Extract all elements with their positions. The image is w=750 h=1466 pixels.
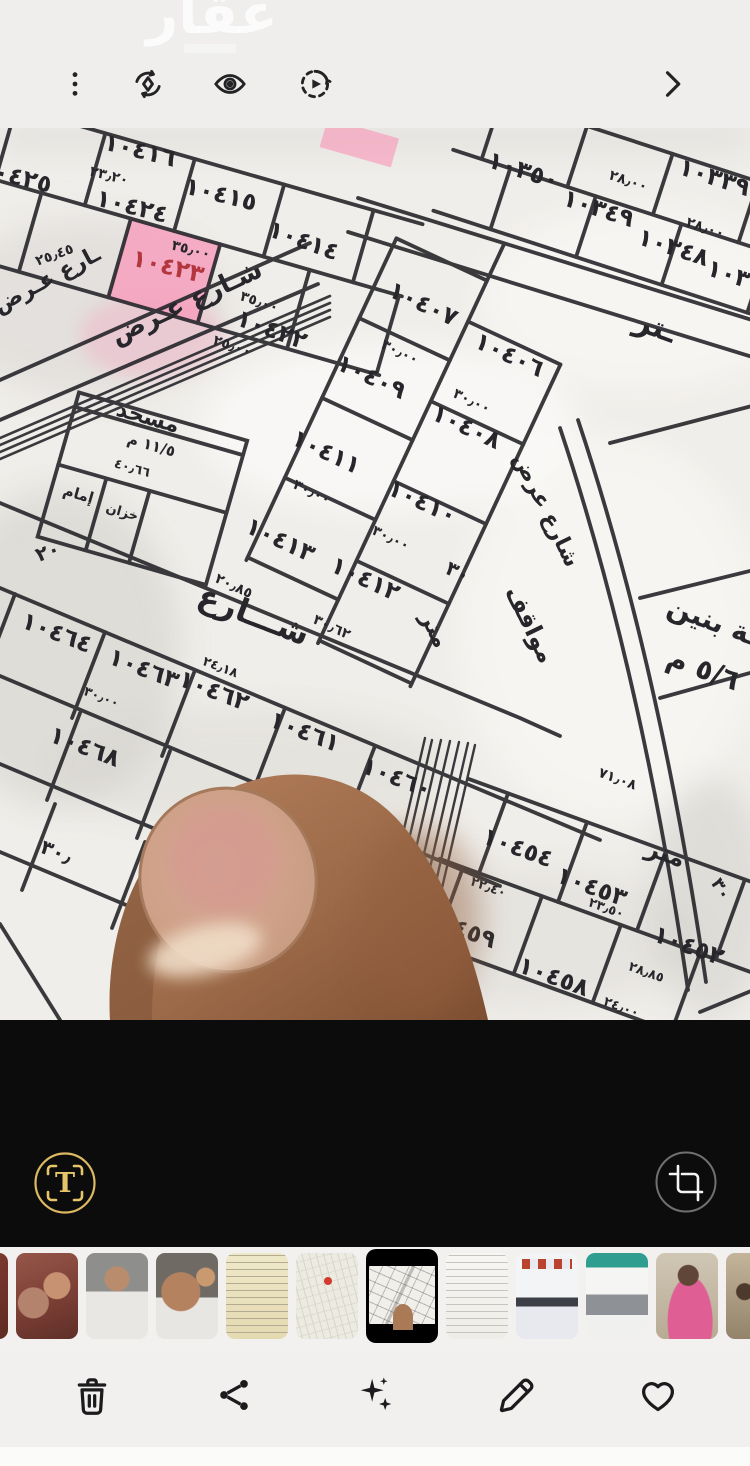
sparkles-icon bbox=[352, 1372, 398, 1421]
favorite-button[interactable] bbox=[632, 1370, 684, 1422]
motion-photo-icon bbox=[295, 64, 335, 104]
more-options-icon bbox=[58, 67, 92, 101]
motion-photo-button[interactable] bbox=[289, 58, 341, 110]
share-button[interactable] bbox=[208, 1370, 260, 1422]
heart-icon bbox=[635, 1372, 681, 1421]
next-button[interactable] bbox=[646, 58, 698, 110]
extract-text-icon: T bbox=[32, 1204, 98, 1219]
thumbnail[interactable] bbox=[226, 1253, 288, 1339]
more-options-button[interactable] bbox=[49, 58, 101, 110]
crop-rotate-button[interactable] bbox=[653, 1149, 719, 1215]
delete-button[interactable] bbox=[66, 1370, 118, 1422]
thumbnail[interactable] bbox=[16, 1253, 78, 1339]
thumbnail[interactable] bbox=[86, 1253, 148, 1339]
watermark-subtext bbox=[184, 44, 236, 53]
thumbnail-photo bbox=[369, 1266, 435, 1324]
next-chevron-icon bbox=[654, 66, 690, 102]
thumbnail[interactable] bbox=[446, 1253, 508, 1339]
thumbnail[interactable] bbox=[156, 1253, 218, 1339]
gesture-area bbox=[0, 1447, 750, 1466]
thumbnail[interactable] bbox=[586, 1253, 648, 1339]
pencil-icon bbox=[494, 1372, 540, 1421]
thumbnail[interactable] bbox=[0, 1253, 8, 1339]
viewer-bottom-panel: T bbox=[0, 1020, 750, 1247]
thumbnail[interactable] bbox=[296, 1253, 358, 1339]
thumbnail-selected[interactable] bbox=[366, 1249, 438, 1343]
crop-rotate-icon bbox=[653, 1203, 719, 1218]
trash-icon bbox=[69, 1372, 115, 1421]
gallery-app-screen: عقار bbox=[0, 0, 750, 1466]
extract-text-button[interactable]: T bbox=[32, 1150, 98, 1216]
svg-text:T: T bbox=[55, 1168, 75, 1199]
enhance-button[interactable] bbox=[349, 1370, 401, 1422]
thumbnail-strip bbox=[0, 1247, 750, 1345]
top-toolbar bbox=[0, 0, 750, 128]
paper-map-photo: ١٠٤١٦٢٣٫٢٠١٠٤٢٥١٠٤٢٤١٠٤١٥١٠٤١٤٣٥٫٠٠١٠٤٢٣… bbox=[0, 128, 750, 1020]
show-details-eye-icon bbox=[210, 64, 250, 104]
bottom-toolbar bbox=[0, 1345, 750, 1447]
thumbnail[interactable] bbox=[656, 1253, 718, 1339]
share-icon bbox=[211, 1372, 257, 1421]
remaster-button[interactable] bbox=[122, 58, 174, 110]
thumbnail[interactable] bbox=[516, 1253, 578, 1339]
edit-button[interactable] bbox=[491, 1370, 543, 1422]
show-details-button[interactable] bbox=[204, 58, 256, 110]
remaster-icon bbox=[128, 64, 168, 104]
thumbnail[interactable] bbox=[726, 1253, 750, 1339]
photo-viewer[interactable]: ١٠٤١٦٢٣٫٢٠١٠٤٢٥١٠٤٢٤١٠٤١٥١٠٤١٤٣٥٫٠٠١٠٤٢٣… bbox=[0, 128, 750, 1020]
